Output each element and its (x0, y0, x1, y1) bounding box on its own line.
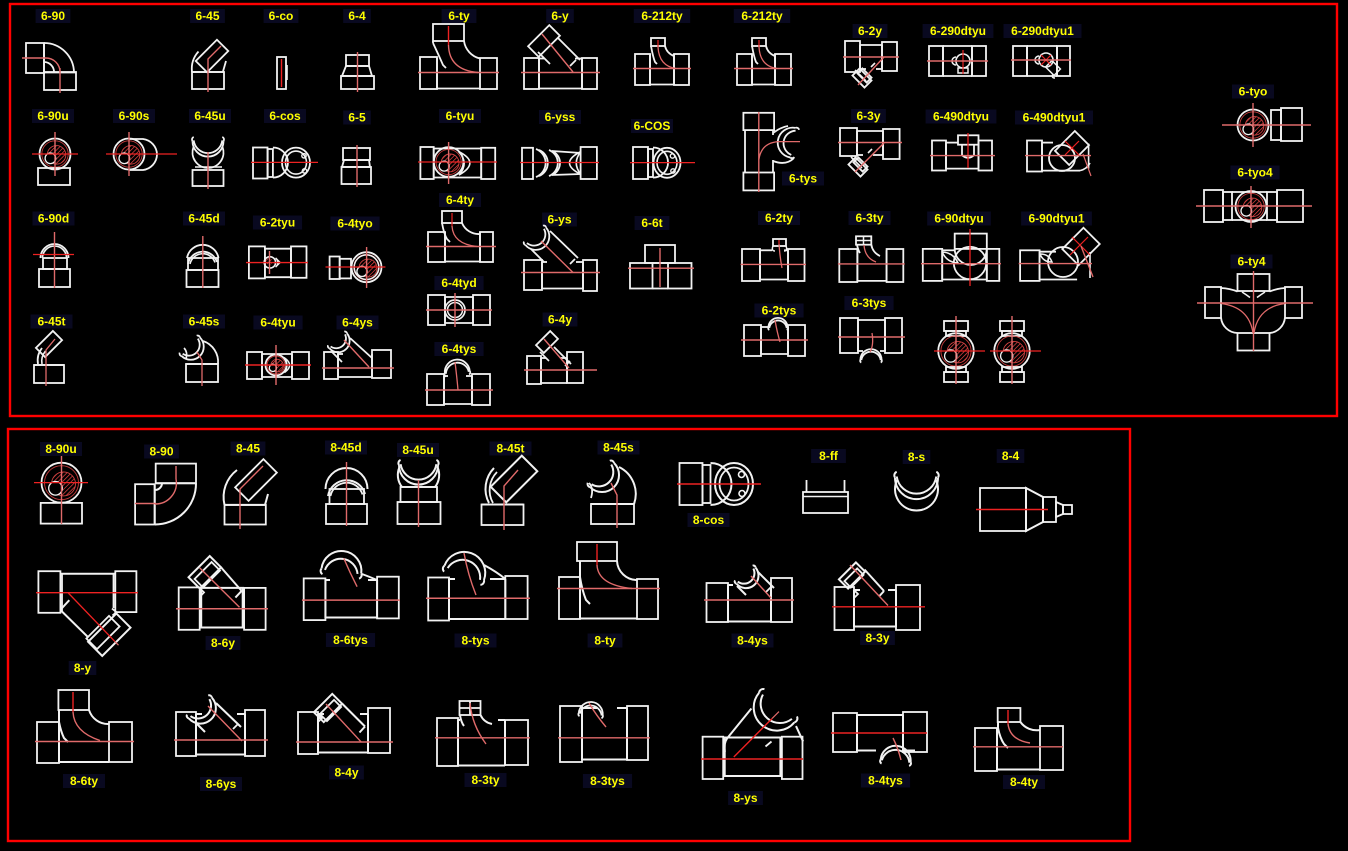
svg-text:8-6tys: 8-6tys (333, 633, 368, 647)
svg-text:6-3tys: 6-3tys (852, 296, 887, 310)
svg-text:8-90: 8-90 (149, 445, 173, 459)
svg-text:8-ys: 8-ys (733, 791, 757, 805)
svg-text:8-cos: 8-cos (693, 513, 725, 527)
svg-text:6-45t: 6-45t (37, 315, 65, 329)
svg-text:8-4ys: 8-4ys (737, 634, 768, 648)
svg-text:6-290dtyu1: 6-290dtyu1 (1011, 24, 1074, 38)
svg-text:6-ty4: 6-ty4 (1237, 255, 1265, 269)
svg-text:6-5: 6-5 (348, 111, 366, 125)
svg-text:6-3ty: 6-3ty (855, 211, 883, 225)
svg-text:6-cos: 6-cos (269, 109, 301, 123)
svg-text:6-4tys: 6-4tys (442, 342, 477, 356)
svg-text:6-290dtyu: 6-290dtyu (930, 24, 986, 38)
svg-text:8-3tys: 8-3tys (590, 774, 625, 788)
svg-text:6-y: 6-y (551, 9, 569, 23)
svg-text:6-ys: 6-ys (547, 213, 571, 227)
svg-text:8-3y: 8-3y (865, 631, 889, 645)
svg-text:6-tyo4: 6-tyo4 (1237, 166, 1273, 180)
svg-text:6-45u: 6-45u (194, 109, 225, 123)
svg-text:6-4: 6-4 (348, 9, 366, 23)
svg-text:8-ff: 8-ff (819, 449, 839, 463)
svg-text:6-4tyo: 6-4tyo (337, 217, 372, 231)
svg-text:8-4y: 8-4y (334, 766, 358, 780)
svg-text:6-212ty: 6-212ty (641, 9, 683, 23)
svg-text:8-6ys: 8-6ys (206, 777, 237, 791)
svg-text:8-45: 8-45 (236, 442, 260, 456)
svg-text:6-45: 6-45 (195, 9, 219, 23)
svg-text:8-45t: 8-45t (496, 442, 524, 456)
svg-text:6-tys: 6-tys (789, 172, 817, 186)
svg-text:6-co: 6-co (269, 9, 294, 23)
svg-text:8-90u: 8-90u (45, 442, 76, 456)
svg-text:6-45s: 6-45s (189, 315, 220, 329)
svg-text:6-490dtyu1: 6-490dtyu1 (1023, 111, 1086, 125)
svg-text:6-4tyu: 6-4tyu (260, 316, 295, 330)
svg-text:6-4ys: 6-4ys (342, 316, 373, 330)
svg-text:8-6ty: 8-6ty (70, 774, 98, 788)
svg-text:8-6y: 8-6y (211, 636, 235, 650)
svg-text:8-4: 8-4 (1002, 449, 1020, 463)
svg-text:8-ty: 8-ty (594, 634, 616, 648)
svg-text:6-90d: 6-90d (38, 212, 69, 226)
svg-text:6-ty: 6-ty (448, 9, 470, 23)
svg-text:8-45s: 8-45s (603, 441, 634, 455)
svg-text:6-90u: 6-90u (37, 109, 68, 123)
svg-text:8-4tys: 8-4tys (868, 774, 903, 788)
svg-text:8-4ty: 8-4ty (1010, 775, 1038, 789)
svg-text:6-2tys: 6-2tys (762, 304, 797, 318)
svg-text:8-45u: 8-45u (402, 443, 433, 457)
svg-text:6-tyo: 6-tyo (1239, 85, 1268, 99)
svg-text:6-yss: 6-yss (545, 110, 576, 124)
svg-text:6-tyu: 6-tyu (446, 109, 475, 123)
svg-text:6-4ty: 6-4ty (446, 193, 474, 207)
svg-text:6-90dtyu: 6-90dtyu (934, 212, 983, 226)
svg-text:8-45d: 8-45d (330, 441, 361, 455)
svg-text:6-COS: 6-COS (634, 119, 671, 133)
svg-text:6-90s: 6-90s (119, 109, 150, 123)
svg-text:6-4y: 6-4y (548, 313, 572, 327)
svg-text:6-2ty: 6-2ty (765, 211, 793, 225)
svg-text:8-s: 8-s (908, 450, 926, 464)
svg-text:6-490dtyu: 6-490dtyu (933, 110, 989, 124)
svg-text:6-90dtyu1: 6-90dtyu1 (1028, 212, 1084, 226)
svg-text:6-6t: 6-6t (641, 216, 662, 230)
svg-text:6-4tyd: 6-4tyd (441, 276, 476, 290)
svg-text:6-2y: 6-2y (858, 24, 882, 38)
svg-text:6-2tyu: 6-2tyu (260, 216, 295, 230)
svg-text:6-212ty: 6-212ty (741, 9, 783, 23)
svg-text:8-3ty: 8-3ty (471, 773, 499, 787)
svg-text:8-y: 8-y (74, 661, 92, 675)
svg-text:8-tys: 8-tys (461, 634, 489, 648)
svg-text:6-3y: 6-3y (856, 109, 880, 123)
svg-text:6-45d: 6-45d (188, 212, 219, 226)
svg-text:6-90: 6-90 (41, 9, 65, 23)
